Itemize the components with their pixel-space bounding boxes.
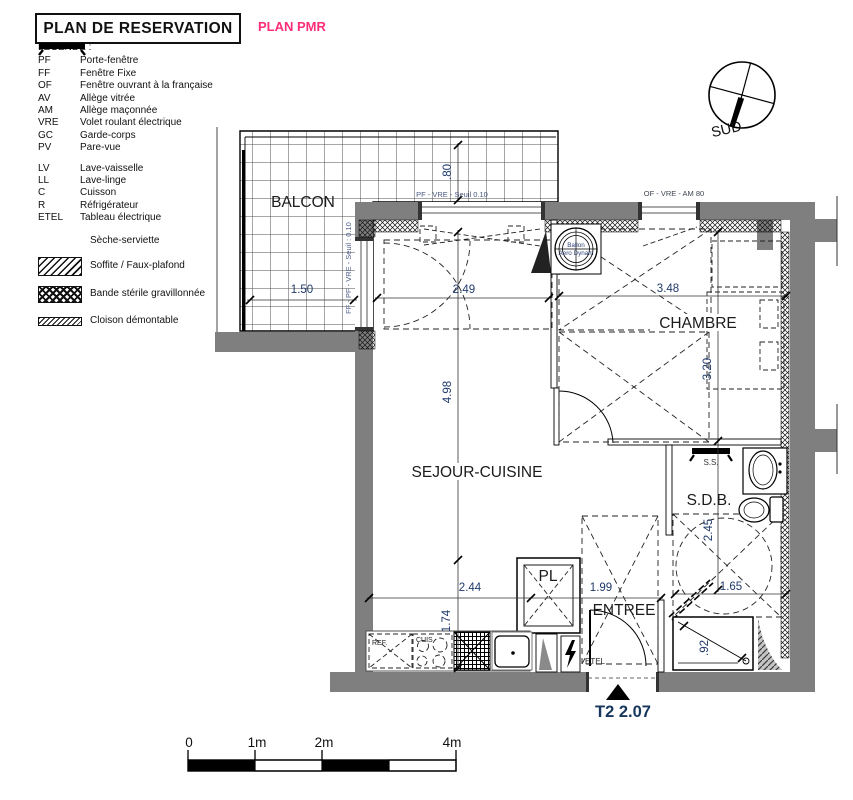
window-label-balcony: FF - PF - VRE - Seuil : 0.10 xyxy=(344,222,353,314)
towel-dryer-label: S.S. xyxy=(703,458,718,467)
sink xyxy=(492,632,532,670)
dim-bedroom-depth: 3.20 xyxy=(702,358,714,380)
dim-living-height: 4.98 xyxy=(442,381,454,403)
dim-shower-width: .92 xyxy=(699,640,711,656)
dim-kitchen-width: 2.44 xyxy=(459,582,482,594)
floor-plan-sheet: PLAN DE RESERVATION PLAN PMR LEGENDE : P… xyxy=(0,0,853,800)
electrical-label: ETEL xyxy=(585,657,606,666)
water-heater-label-2: Aero Dynam xyxy=(559,250,594,257)
dim-kitchen-depth: 1.74 xyxy=(441,609,453,632)
toilet xyxy=(739,497,783,522)
neighbor-wall-stub-top xyxy=(815,219,837,242)
wall-balcony-bottom xyxy=(215,332,358,352)
bedroom-door-leaf xyxy=(554,388,559,445)
window-label-right: OF - VRE - AM 80 xyxy=(644,189,704,198)
pmr-turning-circle xyxy=(676,518,772,614)
kitchen xyxy=(366,631,580,672)
pare-vue-screen xyxy=(242,150,245,331)
label-bedroom: CHAMBRE xyxy=(659,315,737,332)
bedroom-door-swing xyxy=(559,391,613,443)
dim-hall-width: 1.99 xyxy=(590,582,612,594)
scale-label-0: 0 xyxy=(185,735,193,750)
water-heater-label-1: Ballon xyxy=(567,242,585,249)
fridge-label: REF. xyxy=(372,640,387,647)
dim-bath-width: 1.65 xyxy=(720,581,742,593)
water-heater: Ballon Aero Dynam xyxy=(531,224,601,274)
scale-label-1m: 1m xyxy=(248,735,267,750)
label-living: SEJOUR-CUISINE xyxy=(412,464,543,481)
floor-plan: Ballon Aero Dynam S.S. xyxy=(0,0,853,800)
wall-right xyxy=(790,202,815,692)
label-balcony: BALCON xyxy=(271,194,335,211)
bed xyxy=(707,292,784,389)
wall-bottom xyxy=(330,672,815,692)
unit-label: T2 2.07 xyxy=(595,703,651,721)
scale-label-4m: 4m xyxy=(443,735,462,750)
cooktop-label: CUIS xyxy=(416,637,433,644)
bathroom-fixtures: S.S. xyxy=(673,448,787,670)
wall-left-lower xyxy=(355,331,373,672)
label-closet: PL xyxy=(539,568,558,585)
label-entrance: ENTREE xyxy=(593,602,656,619)
dim-bedroom-width: 3.48 xyxy=(657,283,679,295)
window-label-top: PF - VRE - Seuil 0.10 xyxy=(416,190,488,199)
neighbor-wall-stub-mid xyxy=(815,429,837,452)
label-bathroom: S.D.B. xyxy=(687,492,732,509)
dim-living-door: 2.49 xyxy=(453,284,475,296)
scale-label-2m: 2m xyxy=(315,735,334,750)
dim-bath-depth: 2.45 xyxy=(703,519,715,541)
balcony xyxy=(217,127,558,352)
electrical-panel xyxy=(561,636,580,672)
scale-bar: 0 1m 2m 4m xyxy=(185,735,461,771)
dim-balcony-depth: .80 xyxy=(442,164,454,180)
dim-balcony-width: 1.50 xyxy=(291,284,313,296)
